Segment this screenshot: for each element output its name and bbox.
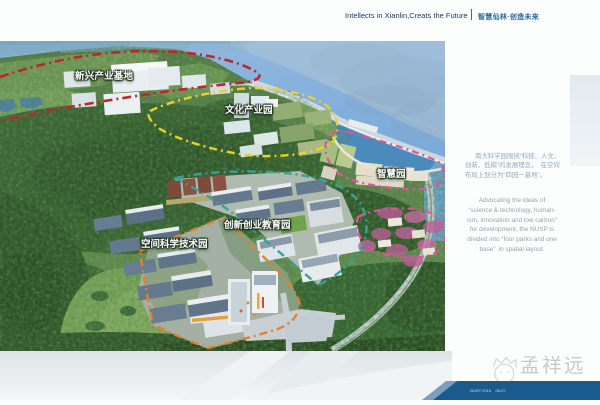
svg-text:NUSP 2016 06-07: NUSP 2016 06-07 xyxy=(470,388,507,393)
